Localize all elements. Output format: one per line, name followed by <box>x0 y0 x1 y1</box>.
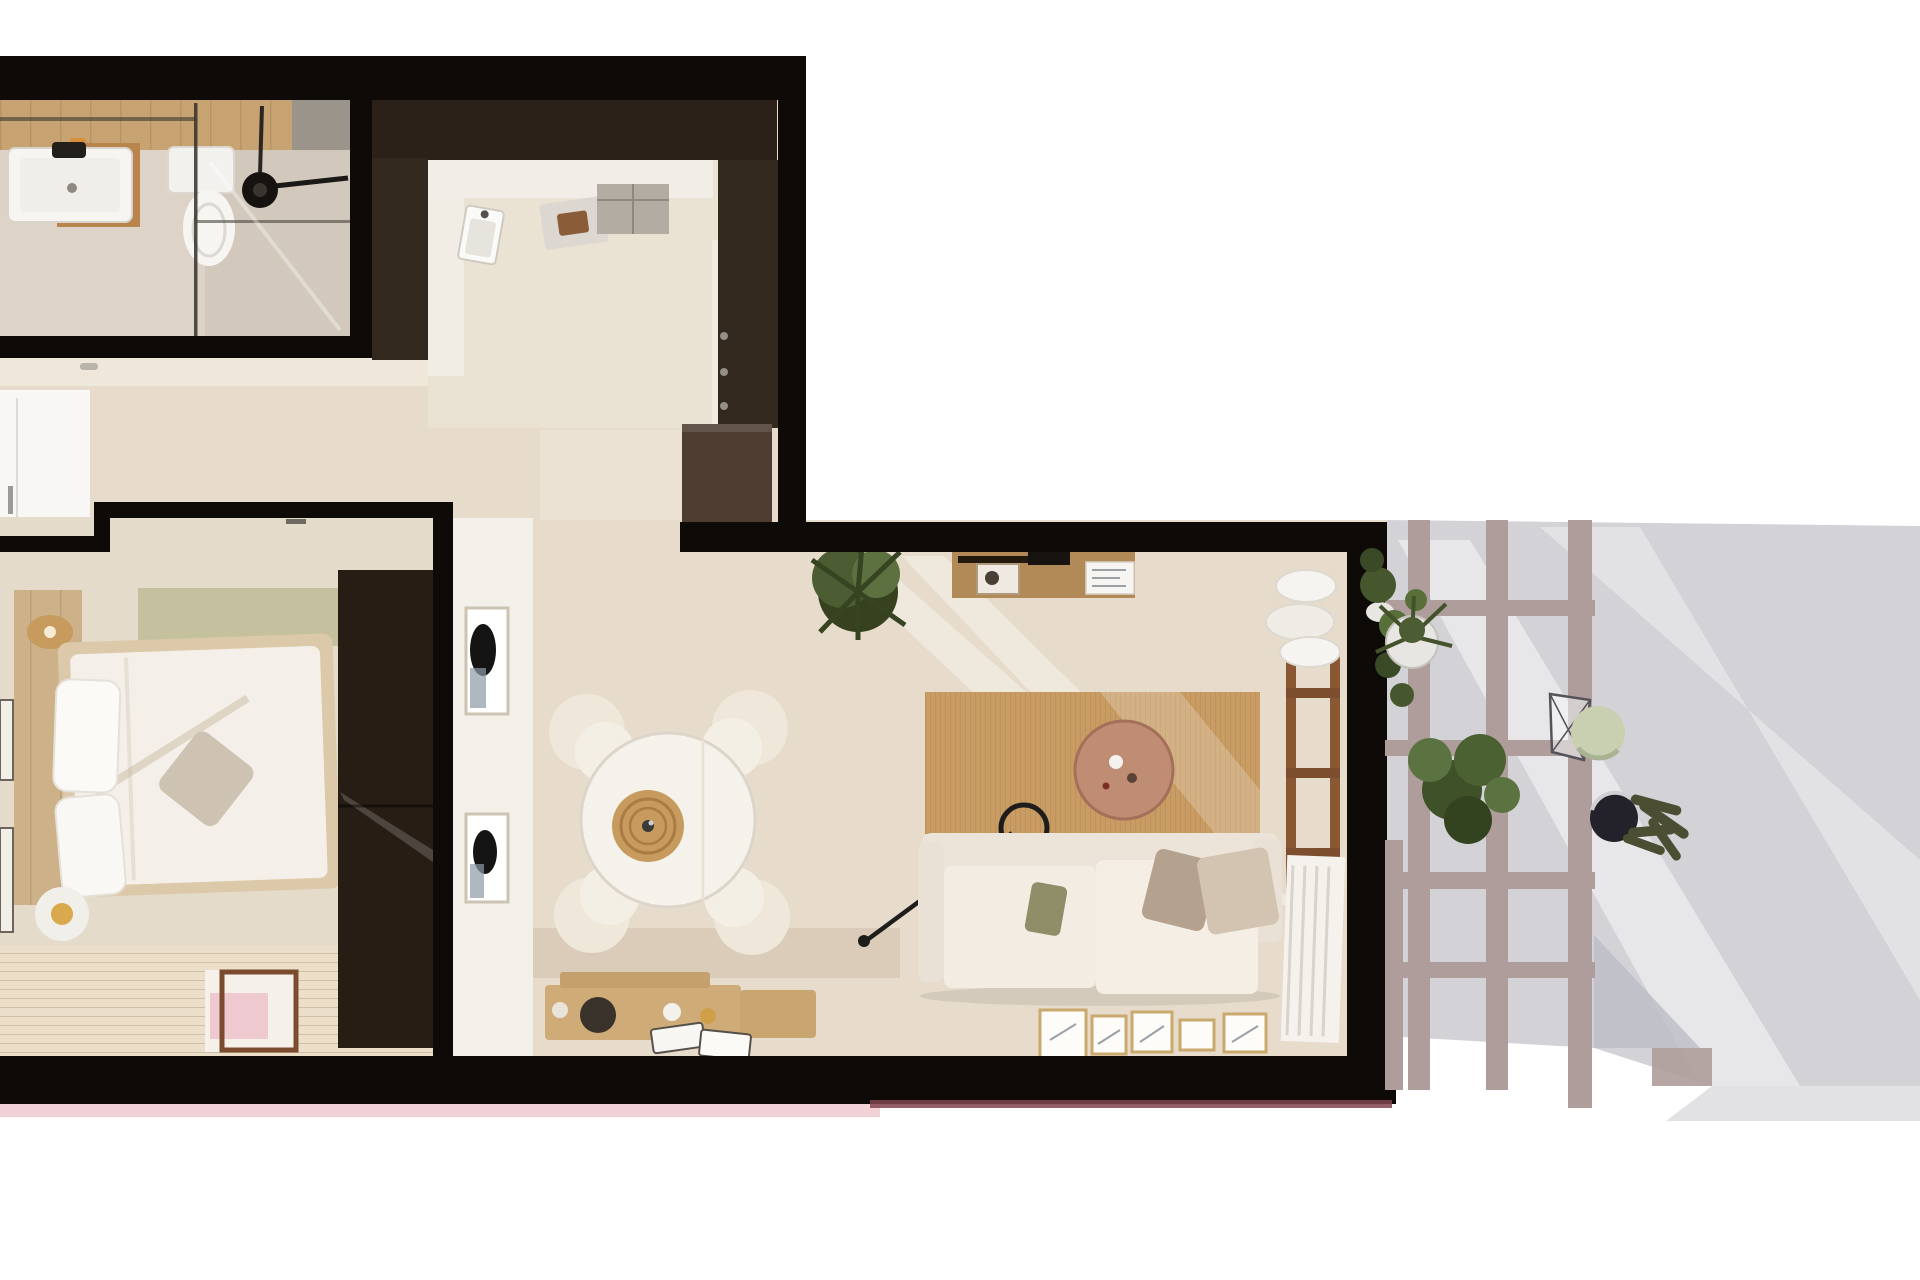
terrace <box>1360 520 1920 1121</box>
pergola-horizontal <box>1385 872 1595 889</box>
leafy-blob <box>1484 777 1520 813</box>
lamp-base <box>858 935 870 947</box>
crate <box>740 990 816 1038</box>
rug-pink-patch <box>210 993 268 1039</box>
wall-bathroom-right <box>350 72 372 358</box>
floor-frame <box>1132 1012 1172 1052</box>
pendant-metal <box>649 821 654 826</box>
table-decor <box>1127 773 1137 783</box>
pink-check-rug <box>205 970 297 1052</box>
crate-item <box>552 1002 568 1018</box>
pergola-horizontal <box>1385 962 1595 978</box>
counter-left-run <box>428 198 464 376</box>
double-bed <box>48 633 342 898</box>
hanging-blanket <box>1281 855 1345 1043</box>
table-decor <box>1103 783 1110 790</box>
sofa <box>918 833 1282 1006</box>
travertine-patch <box>540 430 700 520</box>
crate-gold-item <box>700 1008 716 1024</box>
wardrobe-handle <box>286 519 306 524</box>
wall-frame <box>0 700 13 780</box>
bedside-lamp-glow <box>51 903 73 925</box>
plant-center <box>1399 617 1425 643</box>
leafy-blob <box>1444 796 1492 844</box>
wall-bathroom-bottom <box>0 336 372 358</box>
floor-art-frames <box>1040 1010 1266 1058</box>
kitchen-sink <box>458 205 505 265</box>
foliage <box>1390 683 1414 707</box>
island-top-edge <box>682 424 772 432</box>
island-cabinet <box>682 424 772 530</box>
console-ledge <box>0 358 428 386</box>
floor-frame <box>1180 1020 1214 1050</box>
tall-cabinet-right <box>718 160 778 428</box>
wall-frame <box>0 828 13 932</box>
foliage <box>1405 589 1427 611</box>
wardrobe <box>338 570 433 1048</box>
glass-partition-edge <box>196 220 350 223</box>
wall-bedroom-east <box>433 502 453 1068</box>
wall-top <box>0 56 806 100</box>
door-handle <box>8 486 13 514</box>
sink-drain <box>67 183 77 193</box>
cutting-board <box>557 210 590 236</box>
frame-art-gray <box>470 864 484 898</box>
foliage <box>1360 567 1396 603</box>
shower-head-center <box>253 183 267 197</box>
floor-frame <box>1040 1010 1086 1058</box>
pillow <box>53 679 121 793</box>
foliage <box>1360 548 1384 572</box>
crate-speaker <box>580 997 616 1033</box>
cabinet-hinge <box>720 332 728 340</box>
wall-kitchen-right-slab <box>778 56 806 552</box>
kitchen-upper-cabinets <box>372 95 777 160</box>
terrace-step <box>1666 1086 1920 1121</box>
room-bedroom <box>0 517 433 1058</box>
shower-pipe <box>260 106 262 174</box>
room-bathroom <box>0 100 350 346</box>
crate-clock <box>663 1003 681 1021</box>
towel-roll <box>1266 604 1334 640</box>
crate <box>560 972 710 988</box>
toilet-tank <box>168 147 234 193</box>
ledge-handle <box>80 363 98 370</box>
floor-frame <box>1092 1016 1126 1054</box>
wood-grain <box>0 100 292 150</box>
console-desk <box>952 549 1135 598</box>
sofa-seat <box>944 866 1096 988</box>
glass-partition-frame <box>194 103 198 345</box>
tall-cabinet-left <box>372 158 428 360</box>
baseline-maroon-strip <box>870 1100 1392 1108</box>
floorplan-render <box>0 0 1920 1280</box>
rattan-lamp-glow <box>44 626 56 638</box>
wall-living-top <box>680 522 1387 552</box>
cushion-cream <box>1196 846 1280 935</box>
frame-art-gray <box>470 668 486 708</box>
sofa-arm-left <box>918 842 944 982</box>
ladder-rung <box>1286 768 1340 778</box>
towel-roll <box>1280 637 1340 667</box>
pergola-base-block <box>1652 1048 1712 1086</box>
shower-wall-gray <box>292 100 350 150</box>
counter-top-run <box>428 160 713 198</box>
mirror-rail <box>0 117 195 121</box>
pillow <box>54 793 126 898</box>
outside-notch <box>806 0 1920 520</box>
baseline-pink-strip <box>0 1104 880 1117</box>
leafy-blob <box>1408 738 1452 782</box>
photo-figure <box>985 571 999 585</box>
faucet <box>52 142 86 158</box>
floor-tray <box>699 1029 751 1060</box>
towel-roll <box>1276 570 1336 602</box>
wall-bottom <box>0 1056 1392 1104</box>
wall-face-white <box>453 518 533 1058</box>
floorplan-canvas <box>0 0 1920 1280</box>
ladder-rung <box>1286 688 1340 698</box>
coffee-cup <box>1109 755 1123 769</box>
cabinet-hinge <box>720 368 728 376</box>
cabinet-hinge <box>720 402 728 410</box>
